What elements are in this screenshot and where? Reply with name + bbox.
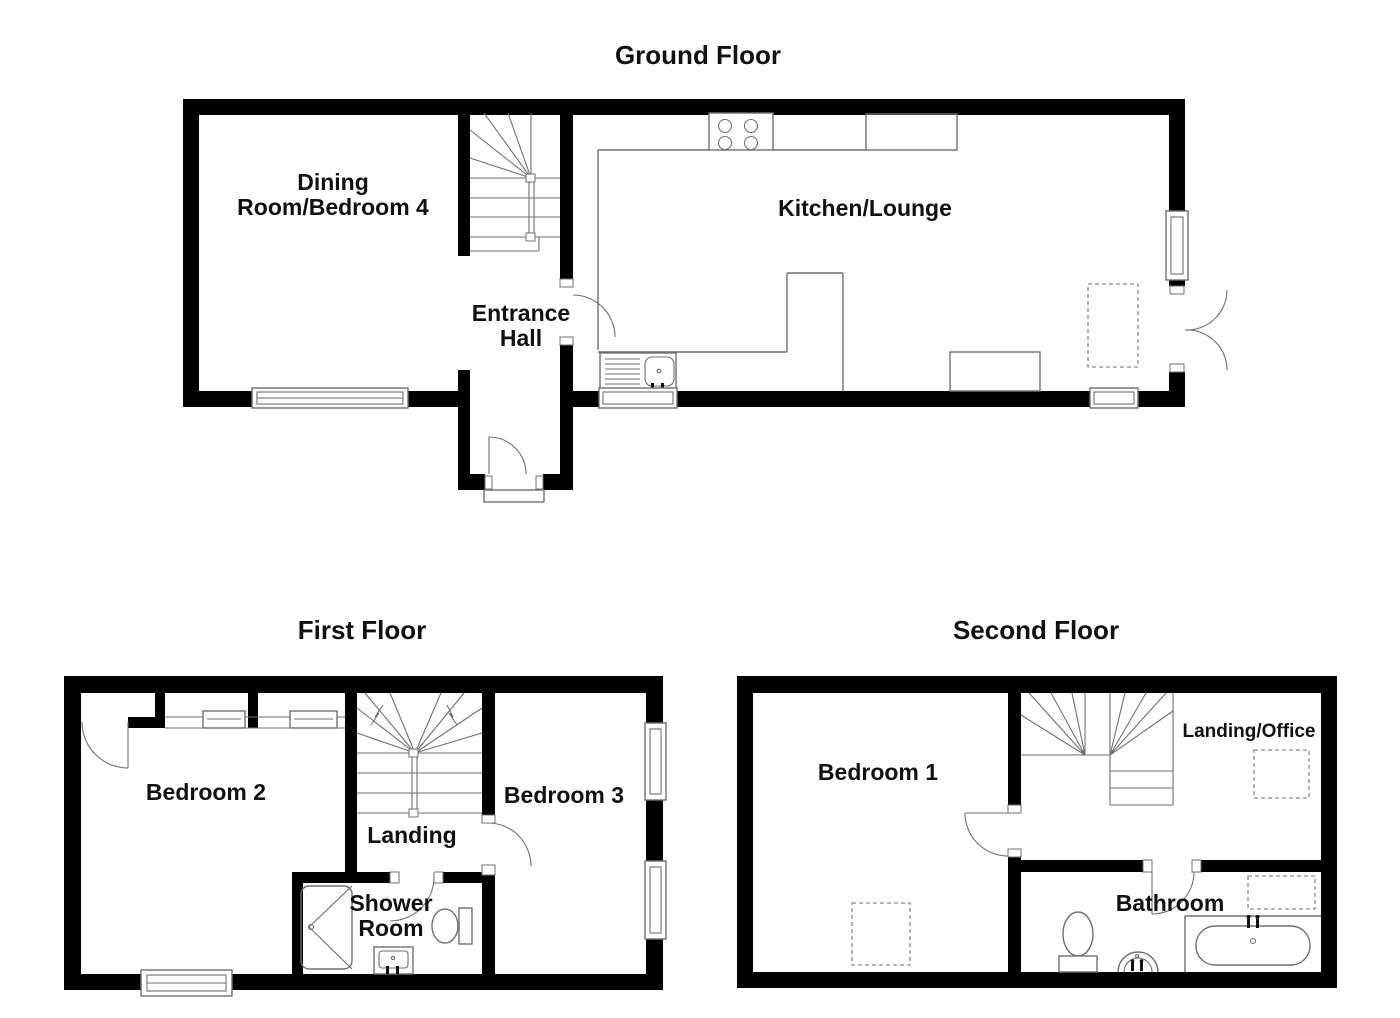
shower-tray-icon	[301, 886, 352, 969]
second-stairs-icon	[1021, 693, 1173, 805]
floorplan-page: Ground Floor	[0, 0, 1400, 1018]
room-label-bedroom2: Bedroom 2	[146, 779, 266, 805]
rooflight-dashed	[1088, 284, 1138, 367]
kitchen-unit	[866, 114, 1040, 391]
bedroom2-window-left	[203, 711, 245, 728]
first-floor-title: First Floor	[298, 615, 427, 645]
room-label-bedroom3: Bedroom 3	[504, 782, 624, 808]
room-label-entrance: Entrance	[472, 300, 570, 326]
kitchen-window-left	[599, 388, 677, 408]
room-label-hall: Hall	[500, 325, 542, 351]
second-floor-plan: Second Floor	[737, 615, 1337, 988]
bedroom3-window-lower	[645, 861, 666, 939]
first-floor-plan: First Floor	[64, 615, 666, 996]
bathroom-rooflight-dashed	[1248, 876, 1315, 909]
room-label-bedroom1: Bedroom 1	[818, 759, 938, 785]
landing-office-rooflight-dashed	[1254, 750, 1309, 798]
kitchen-window-right	[1090, 388, 1138, 408]
bathroom-toilet-icon	[1059, 912, 1097, 972]
room-label-kitchen-lounge: Kitchen/Lounge	[778, 195, 952, 221]
floorplan-drawing: Ground Floor	[0, 0, 1400, 1018]
bathroom-basin-icon	[1118, 952, 1158, 972]
front-door	[484, 437, 544, 502]
kitchen-door-arc	[573, 295, 615, 337]
room-label-bathroom: Bathroom	[1116, 890, 1225, 916]
ground-stairs-icon	[470, 113, 560, 251]
room-label-shower-line2: Room	[358, 915, 423, 941]
room-label-dining-line2: Room/Bedroom 4	[237, 194, 429, 220]
bedroom1-rooflight-dashed	[852, 903, 910, 965]
bedroom1-door	[965, 813, 1008, 856]
hob-icon	[709, 113, 773, 150]
ground-exterior-walls	[183, 99, 1185, 407]
bedroom2-window-right	[290, 711, 337, 728]
room-label-landing-office: Landing/Office	[1183, 721, 1316, 742]
room-label-landing: Landing	[367, 822, 456, 848]
bedroom3-window-upper	[645, 723, 666, 800]
bedroom2-door	[82, 722, 128, 768]
kitchen-side-window	[1166, 211, 1188, 280]
shower-toilet-icon	[432, 908, 472, 944]
ground-floor-plan: Ground Floor	[183, 40, 1227, 502]
first-stairs-icon	[357, 693, 482, 817]
bath-icon	[1185, 915, 1321, 972]
dining-window	[252, 388, 408, 408]
room-label-shower-line1: Shower	[349, 890, 432, 916]
ground-floor-title: Ground Floor	[615, 40, 781, 70]
room-label-dining-line1: Dining	[297, 169, 369, 195]
bedroom3-door-arc	[488, 823, 531, 866]
bedroom2-bottom-window	[141, 970, 232, 996]
shower-basin-icon	[374, 947, 413, 974]
second-floor-title: Second Floor	[953, 615, 1119, 645]
french-doors-icon	[1185, 290, 1227, 370]
